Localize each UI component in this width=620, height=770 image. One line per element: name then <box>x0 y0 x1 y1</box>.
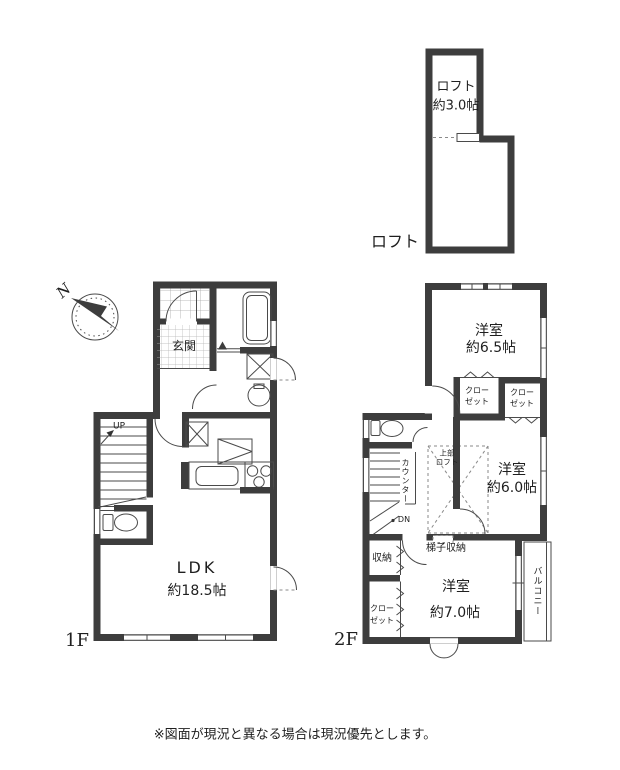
door-2f-bottom <box>430 637 458 658</box>
loft-step <box>457 134 480 142</box>
closet-a-label: クロー <box>465 387 489 395</box>
upper-loft-label: 上部 <box>440 449 455 457</box>
closet-c-label: ゼット <box>370 617 394 625</box>
room-70-label: 洋室 <box>442 580 470 594</box>
balcony-label: バルコニー <box>532 566 541 616</box>
loft-room-size: 約3.0帖 <box>433 100 480 113</box>
dn-label: DN <box>398 516 410 524</box>
disclaimer-note: ※図面が現況と異なる場合は現況優先とします。 <box>154 729 437 742</box>
loft-room-label: ロフト <box>436 81 475 94</box>
window-1f-bottom-right <box>198 634 253 641</box>
compass-icon <box>71 294 119 340</box>
window-2f-left-toilet <box>363 420 370 438</box>
counter-label: カウンター <box>401 459 409 504</box>
window-1f-bottom-left <box>124 634 170 641</box>
room-65-size: 約6.5帖 <box>466 341 516 355</box>
window-2f-room65-right <box>540 318 547 378</box>
room-70-size: 約7.0帖 <box>430 606 480 620</box>
floorplan-page: ロフト 約3.0帖 ロフト N 玄関 UP LDK 約18.5帖 1F 洋室 約… <box>0 0 620 770</box>
ladder-hatch <box>433 536 453 543</box>
floor-1f-label: 1F <box>65 632 89 650</box>
closet-a-label: ゼット <box>465 398 489 406</box>
closet-c-label: クロー <box>370 605 394 613</box>
room-65-label: 洋室 <box>475 324 503 338</box>
room-60-label: 洋室 <box>498 463 526 477</box>
ladder-storage-label: 梯子収納 <box>426 544 466 554</box>
window-2f-room60-right <box>540 437 547 505</box>
entrance-label: 玄関 <box>172 340 196 352</box>
room-60-size: 約6.0帖 <box>487 481 537 495</box>
ldk-label: LDK <box>177 560 218 576</box>
up-label: UP <box>113 423 125 432</box>
closet-b-label: クロー <box>510 389 534 397</box>
window-2f-left-stairs <box>363 458 370 492</box>
floor-2f-label: 2F <box>334 631 358 649</box>
loft-floor-label: ロフト <box>371 234 419 250</box>
door-1f-right <box>270 566 296 590</box>
floorplan-drawing <box>0 0 620 770</box>
upper-loft-label: ロフト <box>436 458 459 466</box>
closet-b-label: ゼット <box>510 400 534 408</box>
window-2f-top-left <box>461 283 483 290</box>
door-1f-washroom-back <box>270 358 295 380</box>
window-1f-toilet <box>94 509 101 534</box>
storage-label: 収納 <box>372 554 392 564</box>
dn-marker <box>391 519 394 522</box>
window-1f-bath <box>270 321 277 346</box>
ldk-size-label: 約18.5帖 <box>167 584 226 598</box>
window-2f-top-right <box>488 283 512 290</box>
